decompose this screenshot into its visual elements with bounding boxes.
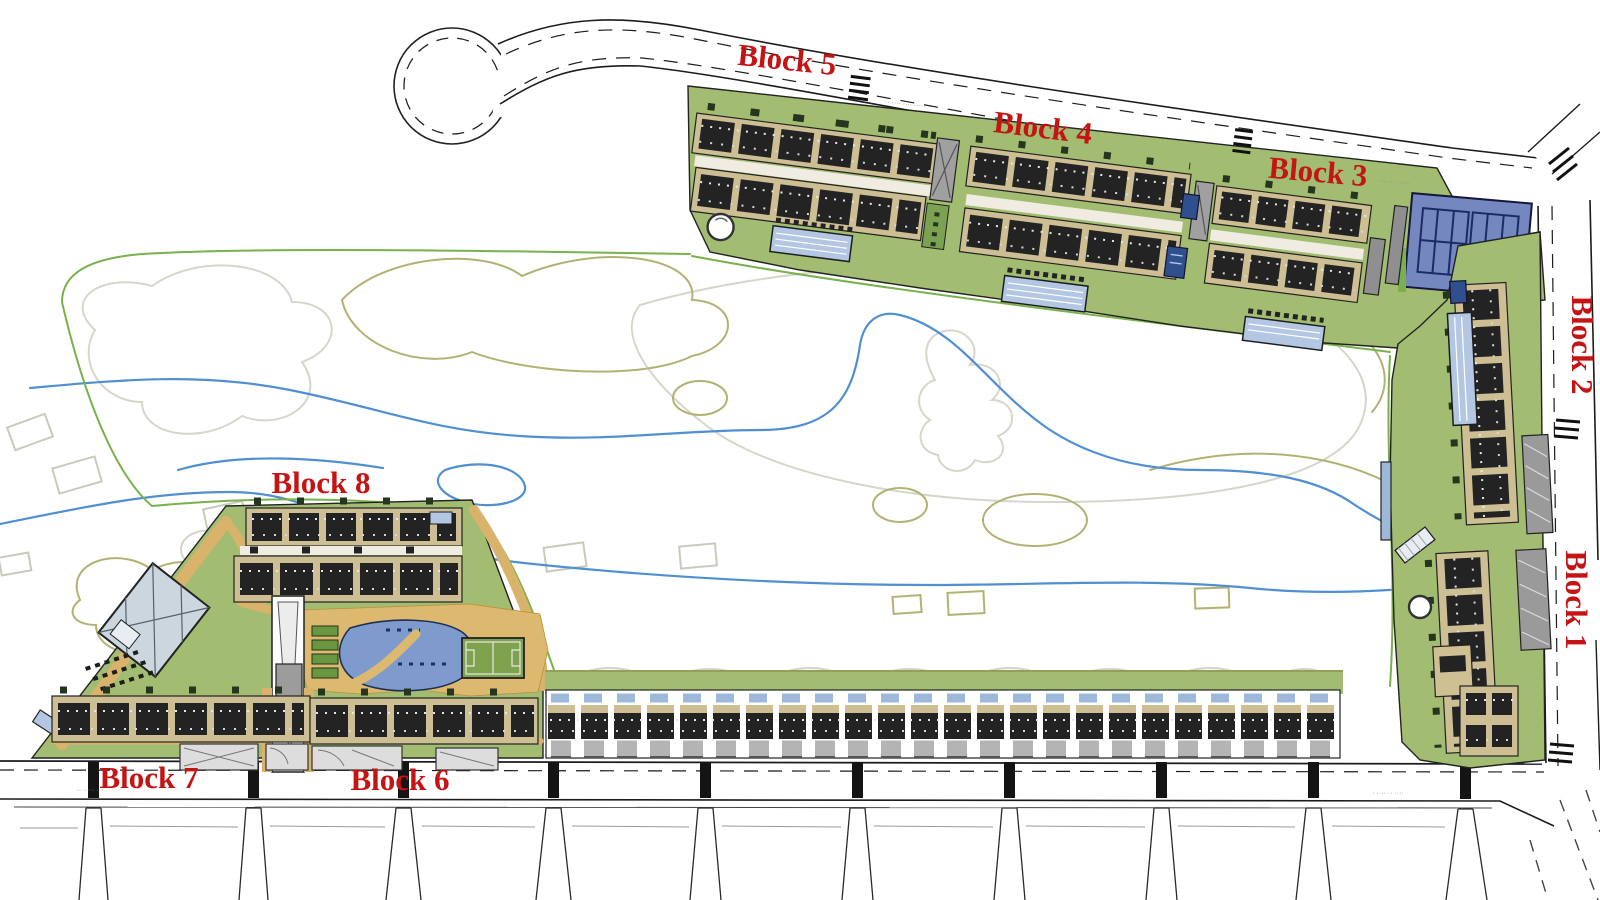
building-cluster-block1-south — [1460, 686, 1518, 756]
contour-olive-top-center — [342, 257, 728, 372]
parcel-triangle — [32, 500, 548, 772]
block-1-label: Block 1 — [1559, 550, 1594, 649]
tee-boxes — [892, 587, 1229, 615]
right-road-body — [1566, 190, 1572, 770]
lot-boundaries — [20, 808, 1487, 900]
bottom-right-road-dashes — [1530, 790, 1600, 900]
branch-road-body — [1540, 116, 1592, 162]
building-row-block8-lower — [234, 556, 462, 602]
driveway-ramps-block7 — [180, 744, 308, 770]
block-6-label: Block 6 — [350, 762, 449, 797]
building-row-block7 — [52, 690, 310, 742]
parking-structure-block1 — [1516, 549, 1551, 650]
master-plan-drawing: Block 5 Block 4 Block 3 Block 2 Block 1 … — [0, 0, 1600, 900]
fountain-circle-south — [1409, 596, 1431, 618]
spine-pavilion — [276, 664, 302, 700]
lap-pool-block2 — [1447, 312, 1477, 425]
contour-olive-oval-2 — [873, 488, 927, 522]
linear-water-feature — [1381, 462, 1391, 540]
building-row-block8-upper — [246, 501, 462, 546]
bottom-road-sidewalk-edge — [14, 807, 1492, 808]
plunge-pool — [1450, 281, 1467, 304]
bottom-road-body — [0, 781, 1556, 783]
contour-olive-oval-1 — [673, 381, 727, 415]
building-row-block6 — [310, 692, 538, 744]
parking-structure-block2 — [1522, 435, 1553, 534]
stream-pond-loop — [438, 464, 525, 505]
plunge-pool — [1164, 246, 1188, 278]
block-7-label: Block 7 — [99, 760, 198, 795]
plunge-pool — [1181, 194, 1200, 220]
block-8-label: Block 8 — [271, 465, 370, 500]
small-pool — [430, 512, 452, 524]
cul-de-sac-inner-dashed — [404, 38, 500, 134]
contour-gray-squiggle-right — [919, 330, 1012, 471]
street-name-bottom-left: ·· ····· ··· — [76, 787, 103, 794]
townhouse-row — [545, 670, 1343, 758]
block-2-label: Block 2 — [1565, 295, 1600, 394]
site-plan-canvas: Block 5 Block 4 Block 3 Block 2 Block 1 … — [0, 0, 1600, 900]
contour-gray-blob-left — [83, 265, 332, 433]
plaza-building — [1439, 655, 1466, 672]
street-name-bottom-right: · ···· ·· ···· — [1372, 790, 1403, 797]
walkway — [240, 546, 462, 555]
sports-pitch — [462, 638, 524, 678]
